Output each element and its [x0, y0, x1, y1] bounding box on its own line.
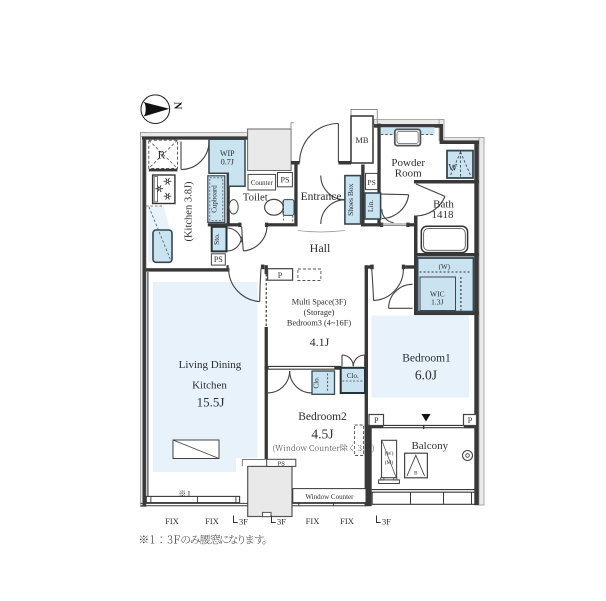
svg-text:Bedroom2: Bedroom2 — [298, 411, 347, 423]
svg-text:Window Counter: Window Counter — [305, 493, 354, 501]
svg-text:N: N — [172, 102, 183, 110]
svg-text:Kitchen: Kitchen — [192, 380, 227, 392]
svg-text:FIX: FIX — [340, 516, 354, 526]
svg-text:(W): (W) — [385, 450, 394, 457]
svg-text:Toilet: Toilet — [243, 192, 268, 204]
svg-text:Bedroom1: Bedroom1 — [402, 353, 451, 365]
svg-text:FIX: FIX — [165, 516, 179, 526]
svg-text:P: P — [278, 271, 283, 280]
svg-text:1.3J: 1.3J — [431, 298, 443, 307]
svg-text:Clo.: Clo. — [313, 376, 321, 388]
svg-text:PS: PS — [278, 460, 286, 467]
svg-text:1418: 1418 — [432, 209, 455, 221]
svg-text:FIX: FIX — [205, 516, 219, 526]
svg-text:6.0J: 6.0J — [415, 368, 437, 383]
svg-text:(M): (M) — [385, 459, 394, 466]
svg-text:Clo.: Clo. — [347, 372, 359, 380]
svg-text:0.7J: 0.7J — [221, 158, 234, 167]
svg-text:(Storage): (Storage) — [304, 308, 335, 317]
svg-text:Room: Room — [395, 168, 422, 180]
svg-text:Balcony: Balcony — [411, 440, 448, 452]
svg-text:1: 1 — [187, 489, 191, 498]
svg-text:3F: 3F — [239, 517, 248, 527]
svg-text:PS: PS — [367, 178, 375, 187]
svg-text:Hall: Hall — [310, 241, 331, 255]
svg-text:R: R — [158, 150, 166, 162]
svg-text:3F: 3F — [382, 517, 391, 527]
svg-text:4.1J: 4.1J — [310, 335, 330, 349]
svg-text:Sto.: Sto. — [212, 233, 221, 245]
svg-text:(Kitchen 3.8J): (Kitchen 3.8J) — [184, 181, 195, 242]
svg-text:W: W — [448, 164, 457, 174]
svg-text:Living Dining: Living Dining — [179, 359, 242, 371]
svg-text:PS: PS — [281, 175, 290, 184]
svg-text:Counter: Counter — [251, 180, 274, 187]
svg-text:Cupboard: Cupboard — [210, 185, 218, 213]
svg-text:P: P — [374, 416, 379, 425]
svg-text:Shoes Box: Shoes Box — [346, 183, 355, 216]
svg-text:Bedroom3 (4~16F): Bedroom3 (4~16F) — [287, 319, 351, 328]
svg-text:FIX: FIX — [306, 516, 320, 526]
svg-text:PS: PS — [214, 255, 223, 264]
svg-text:MB: MB — [355, 135, 369, 145]
svg-text:(W): (W) — [439, 263, 451, 271]
svg-text:Lin.: Lin. — [366, 200, 375, 212]
svg-text:15.5J: 15.5J — [197, 395, 225, 410]
svg-text:Multi Space(3F): Multi Space(3F) — [292, 298, 347, 307]
svg-text:Entrance: Entrance — [301, 191, 342, 203]
svg-text:4.5J: 4.5J — [311, 427, 333, 442]
svg-text:P: P — [468, 416, 473, 425]
svg-text:3F: 3F — [277, 517, 286, 527]
